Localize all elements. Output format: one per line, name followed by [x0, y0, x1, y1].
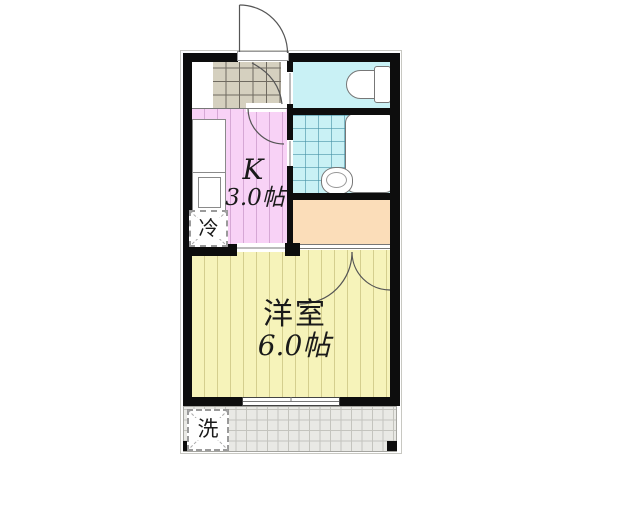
closet-door-arc-right: [352, 252, 390, 290]
washing-machine-label: 洗: [195, 418, 221, 440]
kitchen-door-arc: [248, 108, 284, 144]
entrance-door-arc: [240, 5, 288, 53]
kitchen-label: K: [236, 155, 270, 184]
western-room-size-label: 6.0帖: [248, 331, 340, 360]
floor-plan: K 3.0帖 洋室 6.0帖 冷 洗: [0, 0, 640, 512]
western-room-label: 洋室: [257, 299, 333, 331]
linework-overlay: [0, 0, 640, 512]
genkan-door-arc: [252, 63, 282, 104]
refrigerator-label: 冷: [196, 218, 221, 239]
kitchen-size-label: 3.0帖: [218, 186, 292, 210]
